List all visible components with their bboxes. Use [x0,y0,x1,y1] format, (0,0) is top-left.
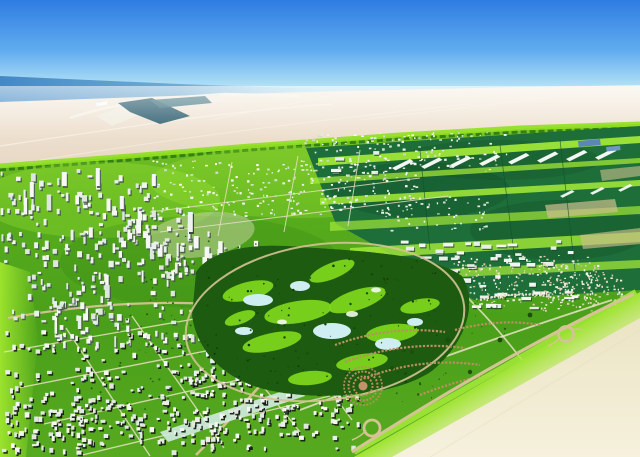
building-block [547,291,549,293]
building-block [610,277,612,279]
building-block [481,217,483,219]
building-block [431,151,433,153]
building-block [451,139,453,141]
building-block [504,305,505,306]
building-block [34,311,39,317]
building-block [288,167,290,169]
building-block [79,409,84,414]
building-block [318,135,320,137]
building-block [478,274,479,275]
building-block [560,280,562,281]
building-block [479,268,481,270]
building-block [498,297,500,298]
tree-dot [398,280,399,281]
building-block [569,291,571,293]
building-block [416,202,418,203]
building-block [524,257,526,259]
building-block [177,243,179,257]
building-block [493,151,495,153]
building-block [109,383,114,388]
tree-dot [242,267,243,268]
building-block [352,207,354,208]
building-block [47,371,52,374]
building-block [192,161,193,162]
building-block [590,298,592,300]
building-block [350,404,353,407]
building-block [203,180,205,182]
building-block [547,280,549,282]
building-block [167,280,169,287]
building-block [206,390,209,394]
building-block [486,202,489,204]
building-block [107,302,111,306]
building-block [301,160,303,162]
building-block [28,210,32,214]
tree-dot [250,329,252,331]
tree-dot [433,310,435,312]
building-block [618,291,620,293]
building-block [580,265,582,266]
building-block [211,369,214,374]
tree-dot [165,253,167,255]
building-block [212,367,215,370]
building-block [338,182,340,184]
tree-dot [248,344,251,347]
building-block [110,306,113,310]
building-block [278,170,280,172]
building-block [306,140,308,141]
tree-dot [381,342,382,343]
building-block [595,271,597,272]
building-block [60,334,62,340]
building-block [403,168,405,169]
building-block [36,373,40,378]
building-block [190,391,195,394]
building-block [176,233,178,236]
building-block [402,141,405,143]
building-block [544,284,546,286]
building-block [484,282,485,284]
building-block [176,411,179,416]
building-block [267,169,270,171]
building-block [384,196,386,198]
building-block [433,135,435,137]
building-block [236,187,238,188]
building-block [259,203,262,204]
building-block [325,199,327,201]
building-block [574,272,575,273]
building-block [156,161,158,163]
tree-dot [174,319,175,320]
building-block [163,410,167,413]
building-block [576,284,578,286]
building-block [302,161,305,162]
building-block [147,334,150,339]
tree-dot [332,265,335,268]
building-block [502,292,504,293]
building-block [138,331,142,335]
building-block [82,438,87,442]
building-block [404,197,406,199]
building-block [487,299,488,301]
building-block [247,423,250,428]
building-block [247,447,250,450]
building-block [429,204,430,206]
building-block [240,192,242,194]
building-block [195,417,200,422]
building-block [338,167,340,169]
building-block [21,314,25,319]
tree-dot [250,290,252,292]
tree-dot [158,396,160,398]
tree-dot [383,278,385,280]
building-block [329,197,331,199]
tree-dot [342,345,343,346]
building-block [333,420,337,424]
building-block [327,134,329,136]
building-block [455,215,457,217]
building-block [516,285,518,287]
building-block [522,256,524,257]
building-block [184,377,188,380]
building-block [187,363,190,366]
building-block [412,163,415,164]
building-block [374,137,376,139]
building-block [543,282,544,284]
building-block [336,150,338,152]
building-block [483,204,486,206]
building-block [491,302,493,303]
building-block [551,262,553,264]
building-block [405,206,407,208]
building-block [549,284,551,286]
building-block [119,251,122,258]
building-block [230,382,235,385]
building-block [340,179,342,181]
tree-dot [431,397,432,398]
building-block [547,265,548,267]
building-block [127,406,132,410]
building-block [572,305,574,306]
building-block [96,212,100,215]
building-block [184,260,186,266]
building-block [572,300,574,301]
building-block [508,255,510,257]
building-block [446,199,448,200]
building-block [564,278,566,279]
tree-dot [298,357,299,358]
building-block [595,300,597,302]
building-block [595,288,597,289]
building-block [23,404,27,408]
building-block [158,440,161,444]
building-block [264,447,266,451]
building-block [232,185,234,186]
building-block [338,189,339,191]
tree-dot [287,366,289,368]
tree-dot [167,302,168,303]
building-block [154,197,156,199]
building-block [150,427,155,432]
building-block [65,248,70,250]
building-block [565,286,567,287]
tree-dot [280,374,281,375]
building-block [128,233,132,239]
building-block [193,167,194,168]
building-block [34,417,38,422]
building-block [439,154,441,155]
building-block [112,211,117,216]
building-block [531,269,533,270]
building-block [577,294,579,296]
tree-dot [213,353,215,355]
building-block [89,427,94,431]
tree-dot [273,358,275,360]
building-block [373,183,375,185]
building-block [541,265,542,266]
building-block [164,190,166,192]
building-block [489,269,491,270]
tree-blob [410,350,414,354]
building-block [405,185,408,187]
building-block [346,181,348,183]
building-block [454,269,456,270]
building-block [164,169,167,171]
building-block [53,249,57,254]
building-block [167,426,170,430]
building-block [15,209,19,214]
building-block [419,156,421,158]
tree-dot [263,283,265,285]
building-block [143,214,147,220]
building-block [228,204,230,205]
tree-dot [263,355,265,357]
building-block [450,133,453,134]
tree-dot [353,327,355,329]
building-block [339,169,341,170]
building-block [587,294,589,296]
tree-dot [392,298,394,300]
building-block [244,419,249,421]
building-block [19,431,24,436]
building-block [132,414,136,419]
building-block [371,140,374,142]
building-block [137,263,142,266]
building-block [496,245,506,248]
building-block [102,359,105,361]
building-block [154,303,158,307]
tree-dot [430,303,431,304]
building-block [141,386,143,388]
building-block [180,165,182,167]
building-block [544,308,546,310]
building-block [209,253,213,258]
building-block [117,314,122,321]
building-block [145,343,147,347]
tree-dot [324,323,326,325]
tree-dot [316,363,317,364]
building-block [361,136,364,138]
building-block [176,218,180,223]
tree-dot [386,278,388,280]
building-block [442,150,444,151]
building-block [69,292,72,297]
building-block [589,278,590,280]
building-block [191,433,194,436]
tree-dot [144,277,146,279]
building-block [81,331,86,335]
building-block [549,292,551,293]
tree-dot [208,277,210,279]
building-block [553,267,555,269]
building-block [579,306,581,308]
building-block [167,421,169,424]
tree-dot [155,298,156,299]
building-block [106,407,111,411]
building-block [120,431,123,434]
golf-inner [192,246,469,396]
building-block [563,281,565,283]
building-block [254,404,258,407]
building-block [251,184,254,185]
building-block [411,208,413,209]
building-block [140,434,143,439]
building-block [465,156,467,158]
building-block [38,272,42,274]
building-block [185,273,188,275]
building-block [589,297,591,298]
building-block [316,163,319,164]
building-block [129,434,133,437]
building-block [345,143,347,144]
building-block [451,258,458,261]
building-block [385,202,387,203]
building-block [10,388,13,393]
building-block [473,280,475,282]
building-block [458,138,460,140]
building-block [317,141,318,143]
building-block [261,427,264,432]
building-block [544,256,546,257]
building-block [293,169,295,170]
tree-dot [215,334,217,336]
building-block [77,169,81,173]
building-block [349,201,351,203]
building-block [41,320,46,322]
building-block [509,262,511,264]
building-block [176,208,179,213]
building-block [7,209,10,214]
building-block [283,164,285,165]
tree-dot [349,303,351,305]
building-block [398,139,401,141]
building-block [109,425,111,427]
building-block [416,227,418,229]
tree-dot [295,350,297,352]
building-block [564,297,574,299]
building-block [215,209,218,211]
building-block [75,368,80,371]
building-block [4,260,7,263]
tree-dot [185,236,186,237]
building-block [33,430,38,434]
building-block [272,209,274,211]
tree-dot [443,375,444,376]
building-block [320,136,322,138]
building-block [398,205,400,207]
tree-dot [216,347,218,349]
building-block [150,343,153,346]
tree-dot [126,402,128,404]
building-block [114,336,116,347]
building-block [266,195,268,197]
tree-dot [162,401,163,402]
building-block [208,231,210,236]
building-block [322,202,325,204]
tree-dot [256,275,258,277]
building-block [315,431,319,434]
tree-dot [172,302,174,304]
tree-dot [247,290,249,292]
tree-dot [356,344,358,346]
building-block [293,178,296,179]
building-block [454,223,456,224]
building-block [152,225,157,229]
building-block [341,167,343,169]
building-block [490,143,492,145]
building-block [597,265,599,267]
building-block [620,280,622,282]
building-block [528,298,529,299]
building-block [310,170,312,172]
tree-dot [180,344,181,345]
building-block [409,137,411,138]
tree-dot [275,371,276,372]
building-block [74,410,79,413]
building-block [46,255,49,260]
tree-dot [428,314,430,316]
tree-dot [350,271,352,273]
building-block [293,200,294,202]
building-block [222,414,225,417]
building-block [527,263,536,267]
building-block [362,172,364,174]
building-block [132,229,135,234]
building-block [41,330,46,334]
building-block [485,266,487,267]
building-block [532,290,534,291]
building-block [272,200,274,202]
building-block [240,399,243,402]
building-block [300,191,303,193]
building-block [162,208,164,209]
building-block [465,274,467,276]
building-block [81,358,85,360]
building-block [152,207,154,209]
building-block [455,199,457,201]
building-block [565,289,567,290]
building-block [216,194,218,195]
building-block [85,327,88,332]
building-block [45,241,49,250]
tower [62,172,67,186]
building-block [259,432,264,434]
building-block [60,325,64,330]
building-block [541,262,543,263]
building-block [141,259,144,265]
building-block [577,260,578,262]
building-block [239,417,242,420]
